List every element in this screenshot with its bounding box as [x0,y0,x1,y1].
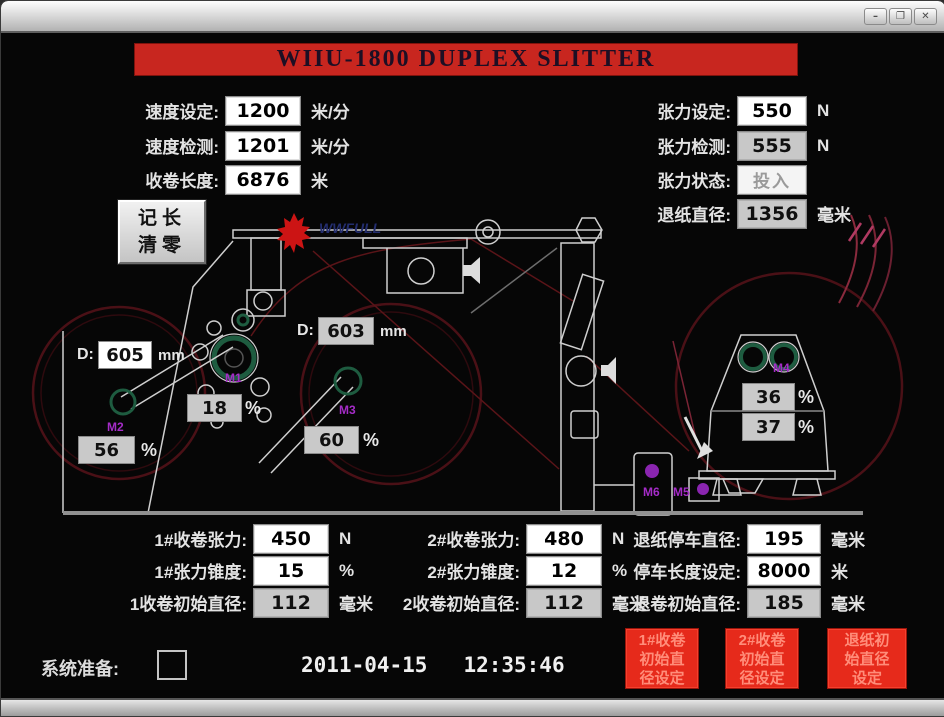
roll2-diameter-unit: mm [380,323,407,340]
field-w1-taper: 1#张力锥度: 15 % [41,557,354,584]
w1-init-diameter-label: 1收卷初始直径: [41,590,247,615]
field-speed-setting: 速度设定: 1200 米/分 [89,97,350,124]
field-unwind-init-diameter: 退卷初始直径: 185 毫米 [609,589,865,616]
wind-length-value: 6876 [226,166,300,194]
tension-feedback-value: 555 [738,132,806,160]
w2-btn-line3: 径设定 [726,669,798,688]
motor-m4-label: M4 [773,361,790,375]
unwind-btn-line2: 始直径 [828,650,906,669]
motor-m5-label: M5 [673,485,690,499]
length-clear-line1: 记长 [120,205,204,232]
wind-length-unit: 米 [311,167,328,192]
w2-init-diameter-value: 112 [527,589,601,617]
w2-taper-label: 2#张力锥度: [316,558,520,583]
system-ready-checkbox[interactable] [157,650,187,680]
unwind-lower-percent-value: 37 [743,414,794,440]
stop-length-setting-unit: 米 [831,558,848,583]
brand-logo: WWFULL [277,213,381,253]
tension-status-label: 张力状态: [609,167,731,192]
field-wind-length: 收卷长度: 6876 米 [89,166,328,193]
stop-length-setting-value[interactable]: 8000 [748,557,820,585]
w1-tension-label: 1#收卷张力: [41,526,247,551]
wind-length-label: 收卷长度: [89,167,219,192]
unwind-diameter-label: 退纸直径: [609,201,731,226]
field-tension-feedback: 张力检测: 555 N [609,132,829,159]
m2-output-percent-value: 56 [79,437,134,463]
w1-btn-line1: 1#收卷 [626,631,698,650]
m2-percent-sign: % [141,440,157,461]
speed-setting-value[interactable]: 1200 [226,97,300,125]
tension-status-value: 投入 [738,166,806,194]
unwind-stop-diameter-label: 退纸停车直径: [609,526,741,551]
w1-btn-line3: 径设定 [626,669,698,688]
unwind-btn-line1: 退纸初 [828,631,906,650]
brand-name: WWFULL [319,220,381,236]
unwind-stop-diameter-value[interactable]: 195 [748,525,820,553]
unwind-init-diameter-value: 185 [748,589,820,617]
unwind-stop-diameter-unit: 毫米 [831,526,865,551]
roll1-diameter-value: 605 [99,342,151,368]
stop-length-setting-label: 停车长度设定: [609,558,741,583]
speed-feedback-label: 速度检测: [89,133,219,158]
field-w2-init-diameter: 2收卷初始直径: 112 毫米 [316,589,646,616]
motor-m1-label: M1 [225,371,242,385]
w2-init-diameter-label: 2收卷初始直径: [316,590,520,615]
length-clear-button[interactable]: 记长 清零 [118,200,206,264]
unwind-upper-percent-sign: % [798,387,814,408]
field-unwind-stop-diameter: 退纸停车直径: 195 毫米 [609,525,865,552]
unwind-btn-line3: 设定 [828,669,906,688]
field-w2-taper: 2#张力锥度: 12 % [316,557,627,584]
system-ready-label: 系统准备: [41,655,119,681]
field-speed-feedback: 速度检测: 1201 米/分 [89,132,350,159]
unwind-init-diameter-set-button[interactable]: 退纸初 始直径 设定 [827,628,907,689]
tension-setting-unit: N [817,101,829,121]
m3-percent-sign: % [363,430,379,451]
w1-init-diameter-set-button[interactable]: 1#收卷 初始直 径设定 [625,628,699,689]
w2-btn-line1: 2#收卷 [726,631,798,650]
speed-feedback-unit: 米/分 [311,133,350,158]
motor-m2-label: M2 [107,420,124,434]
hmi-window: – ❐ ✕ WIIU-1800 DUPLEX SLITTER [0,0,944,717]
page-title: WIIU-1800 DUPLEX SLITTER [277,46,656,73]
field-w2-tension: 2#收卷张力: 480 N [316,525,624,552]
motor-m3-label: M3 [339,403,356,417]
w1-taper-label: 1#张力锥度: [41,558,247,583]
m1-output-percent-value: 18 [188,395,241,421]
w2-btn-line2: 初始直 [726,650,798,669]
roll2-diameter-prefix: D: [297,322,314,340]
roll1-diameter-unit: mm [158,347,185,364]
tension-setting-label: 张力设定: [609,98,731,123]
unwind-diameter-unit: 毫米 [817,201,851,226]
close-icon[interactable]: ✕ [914,8,937,25]
speed-setting-label: 速度设定: [89,98,219,123]
field-tension-setting: 张力设定: 550 N [609,97,829,124]
tension-feedback-label: 张力检测: [609,133,731,158]
tension-feedback-unit: N [817,136,829,156]
roll1-diameter-prefix: D: [77,346,94,364]
maple-leaf-icon [277,213,311,253]
date-value: 2011-04-15 [301,653,427,677]
m1-percent-sign: % [245,398,261,419]
unwind-lower-percent-sign: % [798,417,814,438]
w2-tension-label: 2#收卷张力: [316,526,520,551]
unwind-init-diameter-unit: 毫米 [831,590,865,615]
datetime-display: 2011-04-15 12:35:46 [301,653,565,677]
window-bottom-frame [1,698,944,716]
window-titlebar: – ❐ ✕ [1,1,944,33]
motor-m6-label: M6 [643,485,660,499]
roll2-diameter-value: 603 [319,318,373,344]
field-unwind-diameter: 退纸直径: 1356 毫米 [609,200,851,227]
field-w1-tension: 1#收卷张力: 450 N [41,525,351,552]
w2-tension-value[interactable]: 480 [527,525,601,553]
w2-taper-value[interactable]: 12 [527,557,601,585]
speed-setting-unit: 米/分 [311,98,350,123]
tension-setting-value[interactable]: 550 [738,97,806,125]
m3-output-percent-value: 60 [305,427,358,453]
unwind-diameter-value: 1356 [738,200,806,228]
field-stop-length-setting: 停车长度设定: 8000 米 [609,557,848,584]
w1-btn-line2: 初始直 [626,650,698,669]
unwind-upper-percent-value: 36 [743,384,794,410]
speed-feedback-value: 1201 [226,132,300,160]
length-clear-line2: 清零 [120,232,204,259]
machine-title-banner: WIIU-1800 DUPLEX SLITTER [134,43,798,76]
minimize-icon[interactable]: – [864,8,887,25]
field-tension-status: 张力状态: 投入 [609,166,817,193]
time-value: 12:35:46 [463,653,564,677]
motor-labels: M1 M2 M3 M4 M5 M6 [107,361,790,499]
maximize-icon[interactable]: ❐ [889,8,912,25]
unwind-init-diameter-label: 退卷初始直径: [609,590,741,615]
w2-init-diameter-set-button[interactable]: 2#收卷 初始直 径设定 [725,628,799,689]
